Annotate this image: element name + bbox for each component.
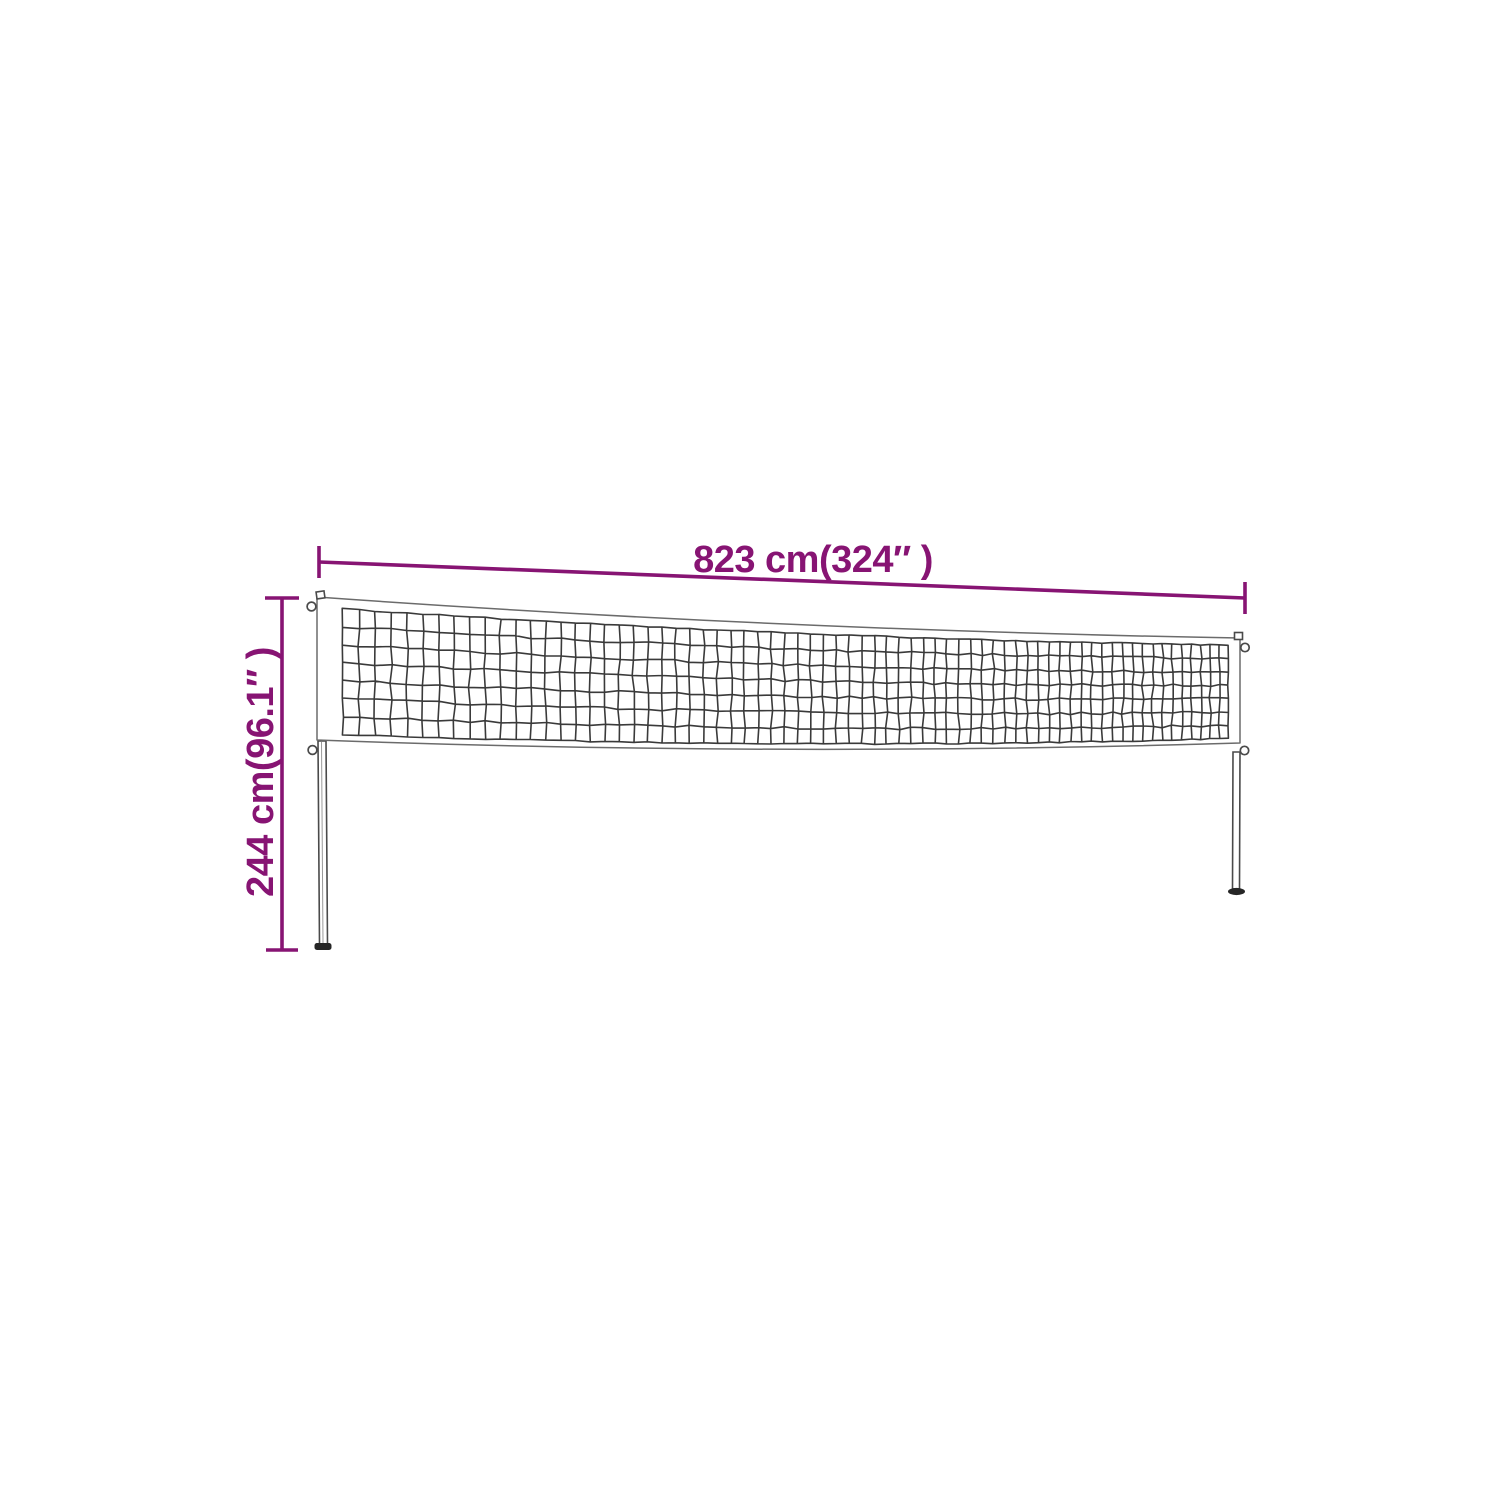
net-diagram <box>0 0 1500 1500</box>
right-bottom-hook-icon <box>1240 746 1248 754</box>
left-post-base <box>315 943 332 950</box>
net-illustration <box>307 591 1249 950</box>
right-post-base <box>1228 888 1245 895</box>
height-dimension-label: 244 cm(96.1″ ) <box>242 647 280 897</box>
left-top-peg <box>316 591 325 599</box>
right-top-peg <box>1235 633 1243 640</box>
right-top-hook-icon <box>1241 643 1249 651</box>
width-dimension-label: 823 cm(324″ ) <box>693 541 933 579</box>
diagram-canvas: 823 cm(324″ ) 244 cm(96.1″ ) <box>0 0 1500 1500</box>
left-bottom-hook-icon <box>308 746 317 755</box>
left-top-hook-icon <box>307 602 316 611</box>
right-post <box>1233 752 1241 889</box>
